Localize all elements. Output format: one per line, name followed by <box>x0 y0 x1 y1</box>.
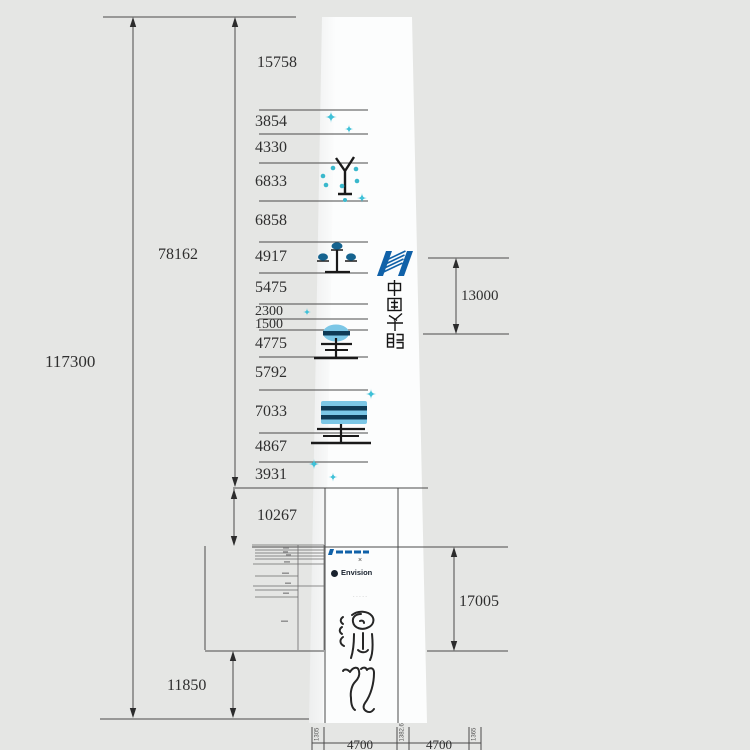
sign-times-symbol: × <box>352 557 368 565</box>
dim-label-seg-4330: 4330 <box>255 139 287 157</box>
dim-label-seg-5475: 5475 <box>255 279 287 297</box>
dim-label-base-sign: 17005 <box>459 593 499 611</box>
dim-label-seg-6858: 6858 <box>255 212 287 230</box>
dim-label-upper-section: 78162 <box>158 246 198 264</box>
bottom-side-label-1: 1305 <box>315 724 322 744</box>
dim-label-seg-3854: 3854 <box>255 113 287 131</box>
bottom-side-label-3: 1365 <box>472 724 479 744</box>
bottom-width-label-1: 4700 <box>342 738 378 750</box>
dim-label-seg-4775: 4775 <box>255 335 287 353</box>
dim-label-seg-5792: 5792 <box>255 364 287 382</box>
sign-fine-print: · · · · · <box>331 595 389 601</box>
inset-fine-marks <box>281 547 291 622</box>
dim-label-seg-10267: 10267 <box>257 507 297 525</box>
dim-label-seg-6833: 6833 <box>255 173 287 191</box>
dim-label-base-height: 11850 <box>167 677 206 695</box>
dim-label-seg-7033: 7033 <box>255 403 287 421</box>
dim-label-seg-4867: 4867 <box>255 438 287 456</box>
dim-label-seg-15758: 15758 <box>257 54 297 72</box>
dim-label-logo-band: 13000 <box>461 288 499 305</box>
dim-label-seg-1500: 1500 <box>255 317 283 332</box>
huaneng-vertical-text: 中国华能 <box>382 279 402 351</box>
dim-label-seg-3931: 3931 <box>255 466 287 484</box>
sign-huaneng-text: 中国华能 <box>336 548 396 555</box>
seal-artwork-text: 演化 <box>334 608 380 716</box>
envision-logo-icon <box>331 570 338 577</box>
dim-label-overall-height: 117300 <box>45 353 95 372</box>
dimension-lines <box>100 17 509 719</box>
bottom-width-label-2: 4700 <box>421 738 457 750</box>
bottom-side-label-2: 1382.6 <box>400 721 407 743</box>
envision-wordmark: Envision <box>341 569 372 577</box>
dim-label-seg-4917: 4917 <box>255 248 287 266</box>
elevation-diagram: 117300 78162 11850 15758 3854 4330 6833 … <box>0 0 750 750</box>
